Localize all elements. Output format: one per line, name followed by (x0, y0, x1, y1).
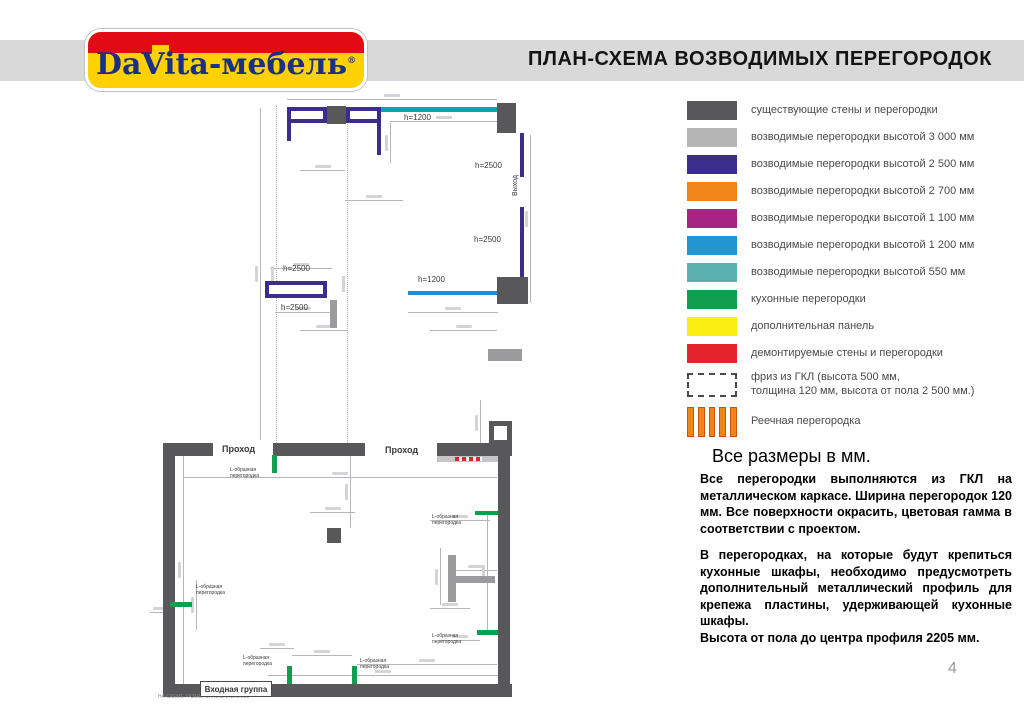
legend-label: существующие стены и перегородки (751, 104, 938, 118)
dimension-text-mark (445, 307, 461, 310)
existing-wall-block (327, 106, 346, 124)
notes-block: Все размеры в мм. Все перегородки выполн… (700, 446, 1012, 656)
legend-label: Реечная перегородка (751, 415, 860, 429)
legend-swatch (687, 290, 737, 309)
existing-wall-block (497, 277, 528, 304)
notes-paragraph: В перегородках, на которые будут крепить… (700, 547, 1012, 630)
dimension-line (300, 330, 348, 331)
dimension-text-mark (269, 643, 285, 646)
legend-label: кухонные перегородки (751, 293, 866, 307)
plan-label: L-образная перегородка (196, 585, 225, 597)
legend-item: демонтируемые стены и перегородки (687, 344, 1017, 363)
legend-item: дополнительная панель (687, 317, 1017, 336)
legend: существующие стены и перегородкивозводим… (687, 101, 1017, 437)
dimension-text-mark (178, 562, 181, 578)
dimension-line (350, 456, 351, 528)
partition-2500-outline (287, 107, 327, 123)
plan-label: L-образная перегородка (360, 659, 389, 671)
page-number: 4 (948, 660, 957, 678)
dimension-text-mark (332, 472, 348, 475)
column (327, 528, 341, 543)
existing-wall-stub (330, 300, 337, 328)
legend-swatch (687, 101, 737, 120)
legend-label: возводимые перегородки высотой 2 500 мм (751, 158, 974, 172)
dimension-line (300, 170, 345, 171)
dimension-line (292, 655, 352, 656)
partition-1200 (381, 107, 497, 112)
dimension-text-mark (255, 266, 258, 282)
plan-label: h=2500 (474, 235, 501, 244)
legend-label: возводимые перегородки высотой 2 700 мм (751, 185, 974, 199)
plan-label: h=1200 (404, 113, 431, 122)
t-partition-horizontal (456, 576, 495, 583)
dimension-line (345, 200, 403, 201)
legend-label: возводимые перегородки высотой 1 100 мм (751, 212, 974, 226)
partition-2500 (377, 123, 381, 155)
kitchen-partition (170, 602, 192, 607)
dimension-line (276, 105, 277, 443)
plan-label: L-образная перегородка (243, 656, 272, 668)
legend-label: возводимые перегородки высотой 1 200 мм (751, 239, 974, 253)
dimension-text-mark (325, 507, 341, 510)
dimension-text-mark (315, 165, 331, 168)
legend-swatch (687, 236, 737, 255)
dimension-line (260, 648, 294, 649)
legend-swatch (687, 344, 737, 363)
dimension-text-mark (435, 569, 438, 585)
legend-swatch (687, 317, 737, 336)
dimension-line (347, 124, 348, 443)
notes-paragraph: Все перегородки выполняются из ГКЛ на ме… (700, 471, 1012, 537)
legend-item: возводимые перегородки высотой 1 200 мм (687, 236, 1017, 255)
legend-item: возводимые перегородки высотой 2 500 мм (687, 155, 1017, 174)
dimension-text-mark (366, 195, 382, 198)
dimension-line (487, 515, 488, 630)
dimension-text-mark (271, 266, 274, 282)
dimension-text-mark (384, 94, 400, 97)
partition-2500 (287, 123, 291, 141)
partition-2500 (520, 207, 524, 277)
legend-stripe (730, 407, 737, 437)
dimension-line (260, 108, 261, 440)
legend-label: возводимые перегородки высотой 550 мм (751, 266, 965, 280)
dimension-line (455, 570, 497, 571)
right-bay (489, 421, 512, 445)
kitchen-partition (287, 666, 292, 684)
room-wall-top (175, 443, 213, 456)
dimension-text-mark (475, 415, 478, 431)
plan-label: h=1200 (418, 275, 445, 284)
dimension-text-mark (456, 325, 472, 328)
notes-heading: Все размеры в мм. (712, 446, 1012, 467)
legend-item: Реечная перегородка (687, 407, 1017, 437)
dimension-text-mark (345, 484, 348, 500)
legend-item: фриз из ГКЛ (высота 500 мм, толщина 120 … (687, 371, 1017, 399)
dimension-text-mark (385, 135, 388, 151)
legend-swatch (687, 407, 737, 437)
dimension-text-mark (525, 211, 528, 227)
partition-1200 (408, 291, 497, 295)
legend-swatch (687, 155, 737, 174)
legend-item: существующие стены и перегородки (687, 101, 1017, 120)
plan-label: Проход (222, 444, 255, 454)
plan-label: h=2500 (475, 161, 502, 170)
plan-label: Выход (512, 175, 520, 196)
room-wall-left (163, 443, 175, 697)
legend-label: фриз из ГКЛ (высота 500 мм, толщина 120 … (751, 371, 974, 399)
plan-label: L-образная перегородка (432, 634, 461, 646)
dimension-line (310, 512, 355, 513)
entrance-label-box: Входная группа (200, 681, 272, 697)
t-partition-vertical (448, 555, 456, 602)
dimension-line (480, 400, 481, 445)
legend-swatch (687, 263, 737, 282)
kitchen-partition (477, 630, 498, 635)
plan-label: h=2500 (281, 303, 308, 312)
legend-stripe (687, 407, 694, 437)
legend-label: дополнительная панель (751, 320, 874, 334)
existing-wall-bar (488, 349, 522, 361)
demolished-wall-segment (455, 457, 482, 461)
entrance-label: Входная группа (205, 685, 268, 694)
plan-label: h=2500 (283, 264, 310, 273)
legend-label: демонтируемые стены и перегородки (751, 347, 943, 361)
dimension-text-mark (436, 116, 452, 119)
legend-swatch (687, 128, 737, 147)
legend-item: кухонные перегородки (687, 290, 1017, 309)
dimension-text-mark (442, 603, 458, 606)
dimension-line (268, 675, 498, 676)
kitchen-partition (272, 455, 277, 473)
dimension-line (408, 312, 498, 313)
dimension-text-mark (419, 659, 435, 662)
legend-stripe (709, 407, 716, 437)
partition-2500-outline (346, 107, 381, 123)
plan-label: Проход (385, 445, 418, 455)
dimension-text-mark (342, 276, 345, 292)
existing-wall-block (497, 103, 516, 133)
legend-item: возводимые перегородки высотой 1 100 мм (687, 209, 1017, 228)
dimension-text-mark (314, 650, 330, 653)
dimension-line (430, 608, 470, 609)
dimension-line (390, 123, 391, 163)
legend-stripe (698, 407, 705, 437)
dimension-line (183, 456, 184, 684)
dimension-line (430, 330, 497, 331)
dimension-line (530, 135, 531, 303)
legend-swatch (687, 209, 737, 228)
legend-swatch (687, 373, 737, 397)
room-wall-top (273, 443, 365, 456)
legend-item: возводимые перегородки высотой 3 000 мм (687, 128, 1017, 147)
kitchen-partition (352, 666, 357, 684)
dimension-line (440, 548, 441, 605)
legend-label: возводимые перегородки высотой 3 000 мм (751, 131, 974, 145)
plan-label: L-образная перегородка (432, 515, 461, 527)
notes-paragraph: Высота от пола до центра профиля 2205 мм… (700, 630, 1012, 647)
legend-item: возводимые перегородки высотой 550 мм (687, 263, 1017, 282)
legend-item: возводимые перегородки высотой 2 700 мм (687, 182, 1017, 201)
partition-2500 (520, 133, 524, 177)
kitchen-partition (475, 511, 498, 515)
legend-swatch (687, 182, 737, 201)
room-wall-right (498, 443, 510, 684)
legend-stripe (719, 407, 726, 437)
plan-label: L-образная перегородка (230, 468, 259, 480)
dimension-line (287, 99, 497, 100)
partition-2500-outline (265, 281, 327, 298)
